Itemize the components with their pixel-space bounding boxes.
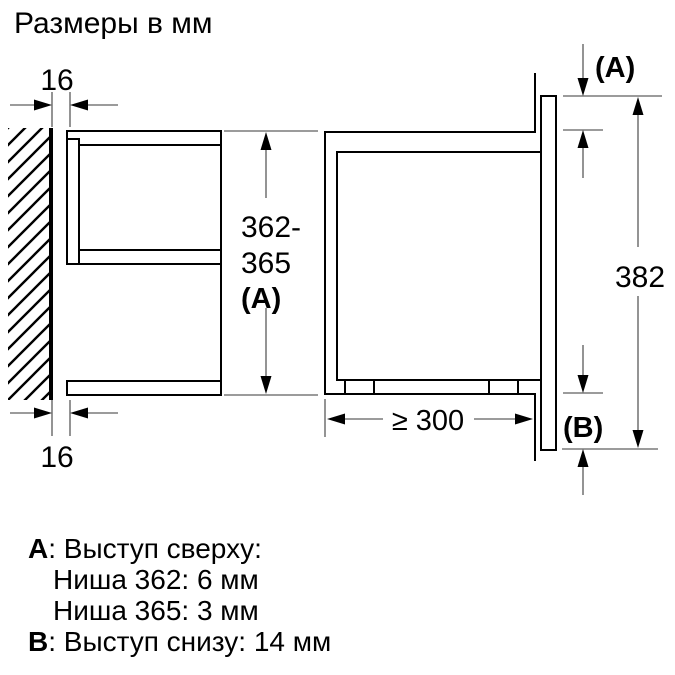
cabinet-back-strip [67, 139, 79, 264]
legend-key-b: B [28, 626, 48, 657]
dim-niche-value-2: 365 [241, 247, 291, 280]
arrowhead [633, 97, 644, 115]
dimension-protrusion-bottom: (B) [562, 345, 658, 495]
arrowhead [578, 375, 589, 393]
arrowhead [578, 130, 589, 148]
label-protrusion-bottom: (B) [563, 412, 603, 444]
legend-text-a: : Выступ сверху: [48, 533, 262, 564]
legend-row-niche-362: Ниша 362: 6 мм [28, 564, 331, 595]
dim-niche-label-a: (A) [241, 283, 281, 315]
niche-bottom-board [79, 250, 221, 264]
arrowhead [578, 78, 589, 96]
arrowhead [34, 100, 52, 111]
legend-row-niche-365: Ниша 365: 3 мм [28, 595, 331, 626]
dim-depth-value: ≥ 300 [392, 405, 464, 437]
arrowhead [578, 449, 589, 467]
appliance-body [337, 152, 541, 380]
dimension-niche-height: 362- 365 (A) [224, 131, 318, 395]
arrowhead [633, 430, 644, 448]
label-protrusion-top: (A) [595, 52, 635, 84]
dimension-overall-height: 382 [615, 97, 665, 448]
front-panel [541, 96, 556, 450]
arrowhead [70, 100, 88, 111]
legend-text-b: : Выступ снизу: 14 мм [48, 626, 331, 657]
legend-row-a: A: Выступ сверху: [28, 533, 331, 564]
arrowhead [515, 414, 533, 425]
cabinet-bottom-board [67, 381, 221, 395]
dimension-depth: ≥ 300 [325, 399, 533, 437]
dim-niche-value-1: 362- [241, 211, 301, 244]
wall-hatch [8, 128, 50, 400]
dim-gap-bottom-value: 16 [40, 441, 73, 474]
legend-key-a: A [28, 533, 48, 564]
arrowhead [34, 408, 52, 419]
wall-section [8, 128, 51, 400]
legend-row-b: B: Выступ снизу: 14 мм [28, 626, 331, 657]
dim-gap-top-value: 16 [40, 64, 73, 97]
cabinet-top-board [67, 131, 221, 145]
arrowhead [261, 376, 272, 394]
legend: A: Выступ сверху: Ниша 362: 6 мм Ниша 36… [28, 533, 331, 657]
dim-height-value: 382 [615, 261, 665, 294]
dimension-gap-top: 16 [10, 64, 118, 127]
left-cabinet [67, 131, 221, 395]
legend-text-niche-365: Ниша 365: 3 мм [53, 595, 259, 626]
legend-text-niche-362: Ниша 362: 6 мм [53, 564, 259, 595]
arrowhead [261, 132, 272, 150]
right-cabinet [325, 73, 556, 461]
arrowhead [70, 408, 88, 419]
arrowhead [327, 414, 345, 425]
dimension-gap-bottom: 16 [10, 400, 118, 474]
dimension-protrusion-top: (A) [563, 44, 662, 178]
